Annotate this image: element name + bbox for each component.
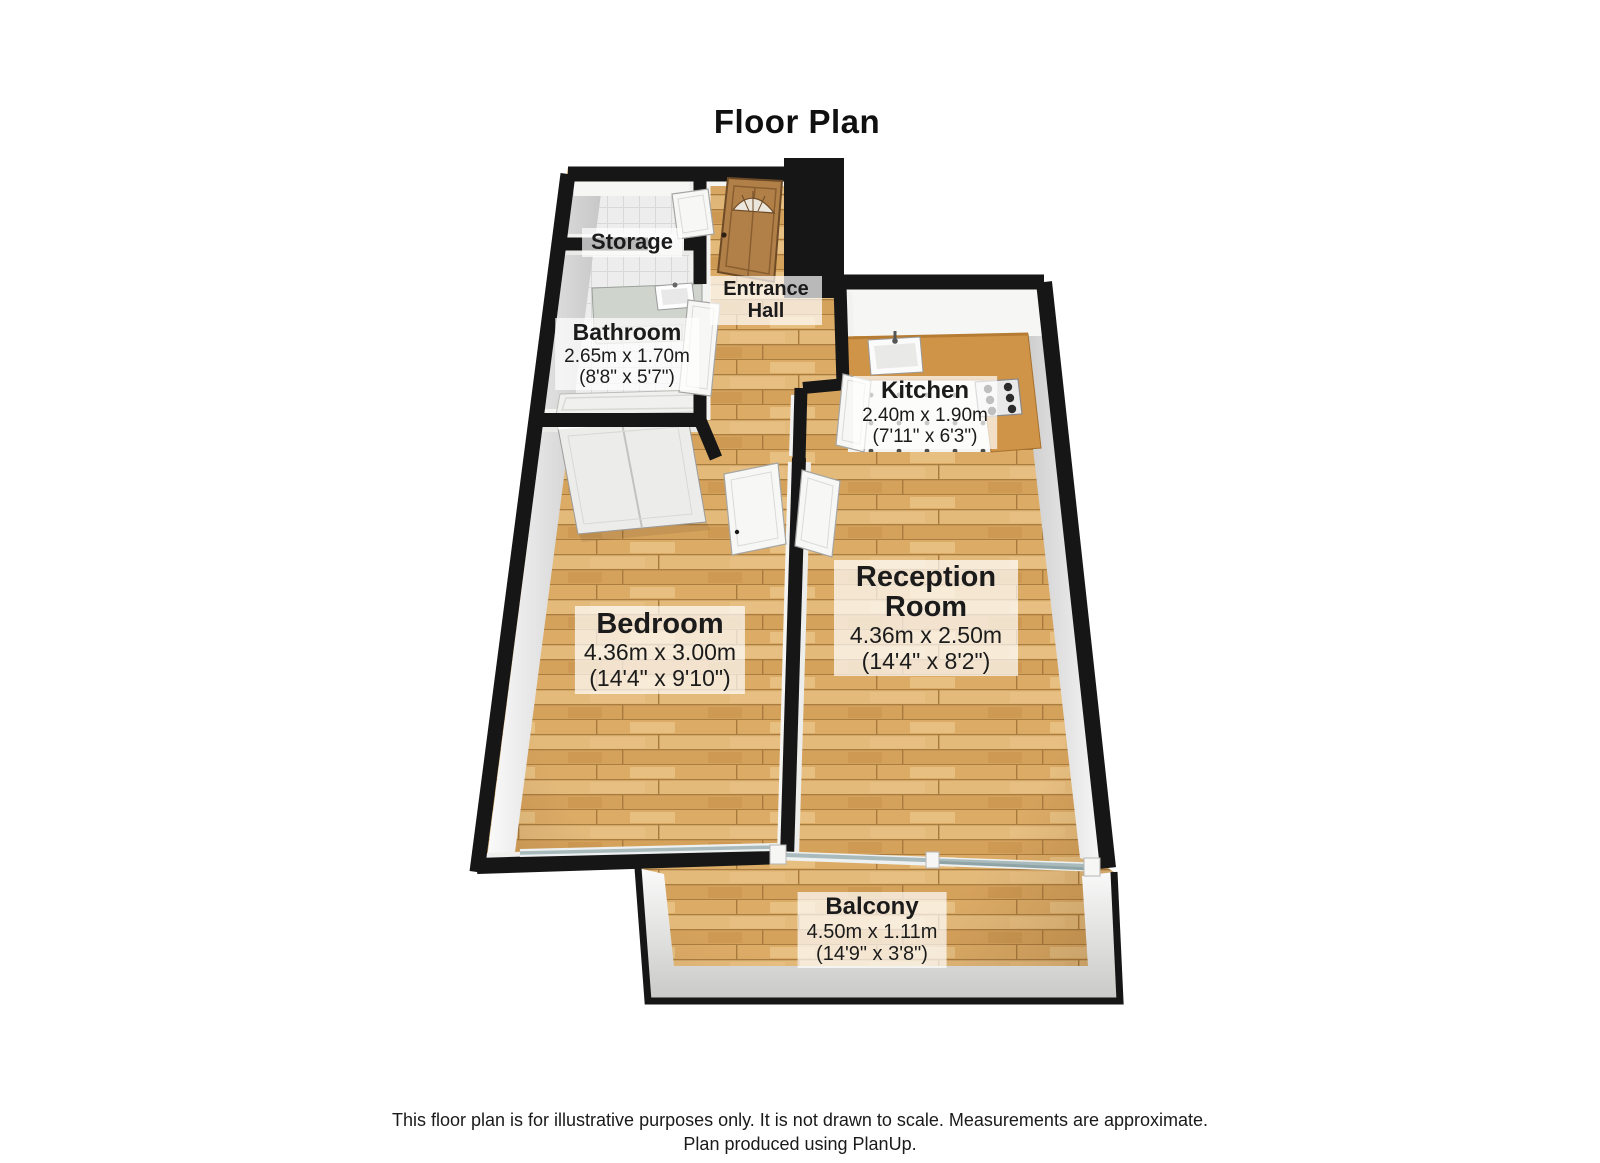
- kitchen-faucet: [892, 338, 898, 344]
- bedroom-door: [724, 463, 786, 555]
- disclaimer-line-1: This floor plan is for illustrative purp…: [392, 1110, 1208, 1131]
- floor-plan-page: { "title": "Floor Plan", "rooms": [ { "i…: [0, 0, 1600, 1163]
- room-dim-metric-reception-room: 4.36m x 2.50m: [838, 623, 1014, 649]
- front-door-handle: [721, 232, 726, 237]
- room-name-storage: Storage: [591, 230, 673, 255]
- page-title: Floor Plan: [714, 103, 880, 141]
- reception-door: [795, 470, 840, 557]
- room-name-kitchen: Kitchen: [862, 378, 988, 405]
- room-dim-metric-kitchen: 2.40m x 1.90m: [862, 405, 988, 426]
- room-name-balcony: Balcony: [807, 894, 938, 921]
- room-label-kitchen: Kitchen 2.40m x 1.90m (7'11" x 6'3"): [853, 376, 997, 449]
- room-dim-imperial-bathroom: (8'8" x 5'7"): [564, 367, 690, 388]
- room-dim-imperial-kitchen: (7'11" x 6'3"): [862, 426, 988, 447]
- room-name-reception-room: Reception Room: [838, 562, 1014, 623]
- room-dim-metric-bedroom: 4.36m x 3.00m: [584, 640, 736, 666]
- room-name-bathroom: Bathroom: [564, 320, 690, 346]
- disclaimer-line-2: Plan produced using PlanUp.: [683, 1134, 916, 1155]
- room-name-entrance-hall: Entrance Hall: [714, 278, 818, 323]
- room-label-entrance-hall: Entrance Hall: [710, 276, 822, 325]
- room-label-reception-room: Reception Room 4.36m x 2.50m (14'4" x 8'…: [834, 560, 1018, 676]
- room-dim-metric-bathroom: 2.65m x 1.70m: [564, 346, 690, 367]
- room-label-storage: Storage: [582, 228, 682, 257]
- floor-plan-drawing: [0, 0, 1600, 1163]
- room-label-bathroom: Bathroom 2.65m x 1.70m (8'8" x 5'7"): [555, 318, 699, 390]
- front-door: [718, 178, 782, 282]
- room-dim-imperial-balcony: (14'9" x 3'8"): [807, 943, 938, 965]
- bathroom-faucet: [673, 283, 678, 288]
- room-dim-metric-balcony: 4.50m x 1.11m: [807, 921, 938, 943]
- room-name-bedroom: Bedroom: [584, 608, 736, 640]
- room-dim-imperial-bedroom: (14'4" x 9'10"): [584, 666, 736, 692]
- room-label-bedroom: Bedroom 4.36m x 3.00m (14'4" x 9'10"): [575, 606, 745, 694]
- room-label-balcony: Balcony 4.50m x 1.11m (14'9" x 3'8"): [798, 892, 947, 968]
- bedroom-wardrobe: [558, 418, 710, 542]
- room-dim-imperial-reception-room: (14'4" x 8'2"): [838, 649, 1014, 675]
- bath-tub: [556, 390, 700, 415]
